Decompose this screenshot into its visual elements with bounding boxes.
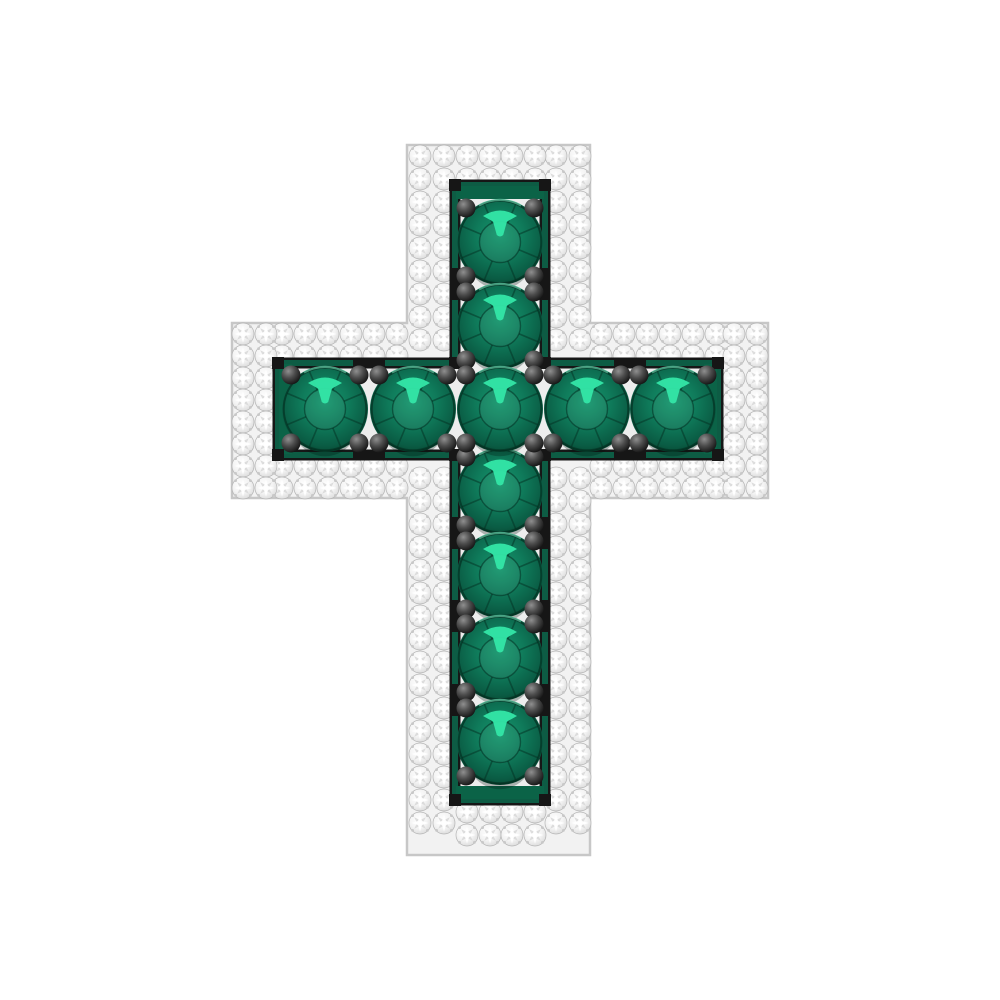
pave-diamond: [231, 322, 254, 345]
emerald-diamond-cross-pendant-render: [0, 0, 1000, 1000]
prong-bead: [350, 366, 369, 385]
pave-diamond: [722, 432, 745, 455]
pave-diamond: [568, 489, 591, 512]
pave-diamond: [408, 213, 431, 236]
pave-diamond: [589, 322, 612, 345]
pave-diamond: [681, 322, 704, 345]
pave-diamond: [408, 489, 431, 512]
pave-diamond: [339, 476, 362, 499]
prong-bead: [544, 434, 563, 453]
prong-bead: [525, 434, 544, 453]
pave-diamond: [544, 144, 567, 167]
pave-diamond: [362, 476, 385, 499]
pave-diamond: [408, 650, 431, 673]
pave-diamond: [722, 388, 745, 411]
pave-diamond: [722, 454, 745, 477]
pave-diamond: [293, 322, 316, 345]
pave-diamond: [339, 322, 362, 345]
prong-bead: [525, 366, 544, 385]
pave-diamond: [455, 823, 478, 846]
prong-bead: [698, 434, 717, 453]
prong-bead: [612, 366, 631, 385]
pave-diamond: [568, 236, 591, 259]
pave-diamond: [681, 476, 704, 499]
pave-diamond: [231, 366, 254, 389]
pave-diamond: [254, 476, 277, 499]
prong-bead: [350, 434, 369, 453]
pave-diamond: [432, 811, 455, 834]
prong-bead: [457, 434, 476, 453]
prong-bead: [630, 366, 649, 385]
pave-diamond: [408, 535, 431, 558]
pave-diamond: [408, 167, 431, 190]
product-image-canvas: [0, 0, 1000, 1000]
pave-diamond: [658, 322, 681, 345]
channel-corner-bracket: [539, 794, 551, 806]
prong-bead: [525, 699, 544, 718]
pave-diamond: [568, 673, 591, 696]
pave-diamond: [523, 823, 546, 846]
pave-diamond: [316, 476, 339, 499]
prong-bead: [457, 199, 476, 218]
pave-diamond: [658, 476, 681, 499]
pave-diamond: [385, 322, 408, 345]
pave-diamond: [500, 823, 523, 846]
pave-diamond: [568, 259, 591, 282]
pave-diamond: [408, 627, 431, 650]
pave-diamond: [254, 322, 277, 345]
pave-diamond: [745, 366, 768, 389]
channel-corner-bracket: [272, 449, 284, 461]
pave-diamond: [568, 811, 591, 834]
channel-corner-bracket: [539, 179, 551, 191]
pave-diamond: [589, 476, 612, 499]
pave-diamond: [568, 581, 591, 604]
pave-diamond: [568, 719, 591, 742]
pave-diamond: [362, 322, 385, 345]
pave-diamond: [568, 558, 591, 581]
pave-diamond: [231, 344, 254, 367]
prong-bead: [438, 366, 457, 385]
pave-diamond: [408, 673, 431, 696]
pave-diamond: [231, 410, 254, 433]
pave-diamond: [745, 410, 768, 433]
pave-diamond: [408, 765, 431, 788]
pave-diamond: [722, 410, 745, 433]
prong-bead: [457, 615, 476, 634]
pave-diamond: [568, 305, 591, 328]
pave-diamond: [408, 512, 431, 535]
pave-diamond: [500, 144, 523, 167]
pave-diamond: [612, 322, 635, 345]
pave-diamond: [568, 788, 591, 811]
pave-diamond: [568, 696, 591, 719]
pave-diamond: [408, 742, 431, 765]
prong-bead: [457, 767, 476, 786]
pave-diamond: [231, 454, 254, 477]
pave-diamond: [316, 322, 339, 345]
pave-diamond: [745, 432, 768, 455]
pave-diamond: [568, 328, 591, 351]
pave-diamond: [231, 432, 254, 455]
prong-bead: [282, 434, 301, 453]
pave-diamond: [722, 344, 745, 367]
pave-diamond: [568, 535, 591, 558]
pave-diamond: [408, 190, 431, 213]
pave-diamond: [408, 811, 431, 834]
pave-diamond: [568, 282, 591, 305]
pave-diamond: [408, 696, 431, 719]
channel-corner-bracket: [449, 179, 461, 191]
channel-end-cap: [456, 186, 544, 199]
pave-diamond: [408, 719, 431, 742]
pave-diamond: [745, 344, 768, 367]
pave-diamond: [408, 558, 431, 581]
pave-diamond: [568, 466, 591, 489]
pave-diamond: [408, 144, 431, 167]
prong-bead: [370, 366, 389, 385]
channel-corner-bracket: [712, 449, 724, 461]
channel-corner-bracket: [272, 357, 284, 369]
pave-diamond: [544, 811, 567, 834]
channel-corner-bracket: [449, 794, 461, 806]
pave-diamond: [722, 366, 745, 389]
pave-diamond: [455, 144, 478, 167]
pave-diamond: [478, 823, 501, 846]
pave-diamond: [568, 650, 591, 673]
pave-diamond: [408, 604, 431, 627]
prong-bead: [525, 532, 544, 551]
prong-bead: [544, 366, 563, 385]
pave-diamond: [568, 604, 591, 627]
prong-bead: [525, 615, 544, 634]
pave-diamond: [478, 144, 501, 167]
pave-diamond: [745, 454, 768, 477]
pave-diamond: [568, 167, 591, 190]
pave-diamond: [523, 144, 546, 167]
pave-diamond: [408, 305, 431, 328]
pave-diamond: [612, 476, 635, 499]
pave-diamond: [231, 476, 254, 499]
prong-bead: [612, 434, 631, 453]
prong-bead: [630, 434, 649, 453]
pave-diamond: [568, 213, 591, 236]
pave-diamond: [745, 322, 768, 345]
pave-diamond: [568, 627, 591, 650]
prong-bead: [457, 699, 476, 718]
pave-diamond: [408, 788, 431, 811]
pave-diamond: [745, 388, 768, 411]
prong-bead: [457, 366, 476, 385]
pave-diamond: [408, 581, 431, 604]
pave-diamond: [722, 322, 745, 345]
channel-corner-bracket: [712, 357, 724, 369]
prong-bead: [525, 767, 544, 786]
pave-diamond: [293, 476, 316, 499]
pave-diamond: [432, 144, 455, 167]
prong-bead: [525, 199, 544, 218]
pave-diamond: [568, 144, 591, 167]
pave-diamond: [568, 765, 591, 788]
prong-bead: [457, 283, 476, 302]
pave-diamond: [635, 322, 658, 345]
pave-diamond: [635, 476, 658, 499]
pave-diamond: [408, 466, 431, 489]
pave-diamond: [745, 476, 768, 499]
pave-diamond: [568, 512, 591, 535]
pave-diamond: [568, 190, 591, 213]
prong-bead: [282, 366, 301, 385]
pave-diamond: [568, 742, 591, 765]
pave-diamond: [408, 259, 431, 282]
pave-diamond: [385, 476, 408, 499]
pave-diamond: [408, 282, 431, 305]
prong-bead: [457, 532, 476, 551]
pave-diamond: [231, 388, 254, 411]
prong-bead: [438, 434, 457, 453]
prong-bead: [698, 366, 717, 385]
prong-bead: [370, 434, 389, 453]
prong-bead: [525, 283, 544, 302]
pave-diamond: [408, 236, 431, 259]
pave-diamond: [408, 328, 431, 351]
pave-diamond: [722, 476, 745, 499]
